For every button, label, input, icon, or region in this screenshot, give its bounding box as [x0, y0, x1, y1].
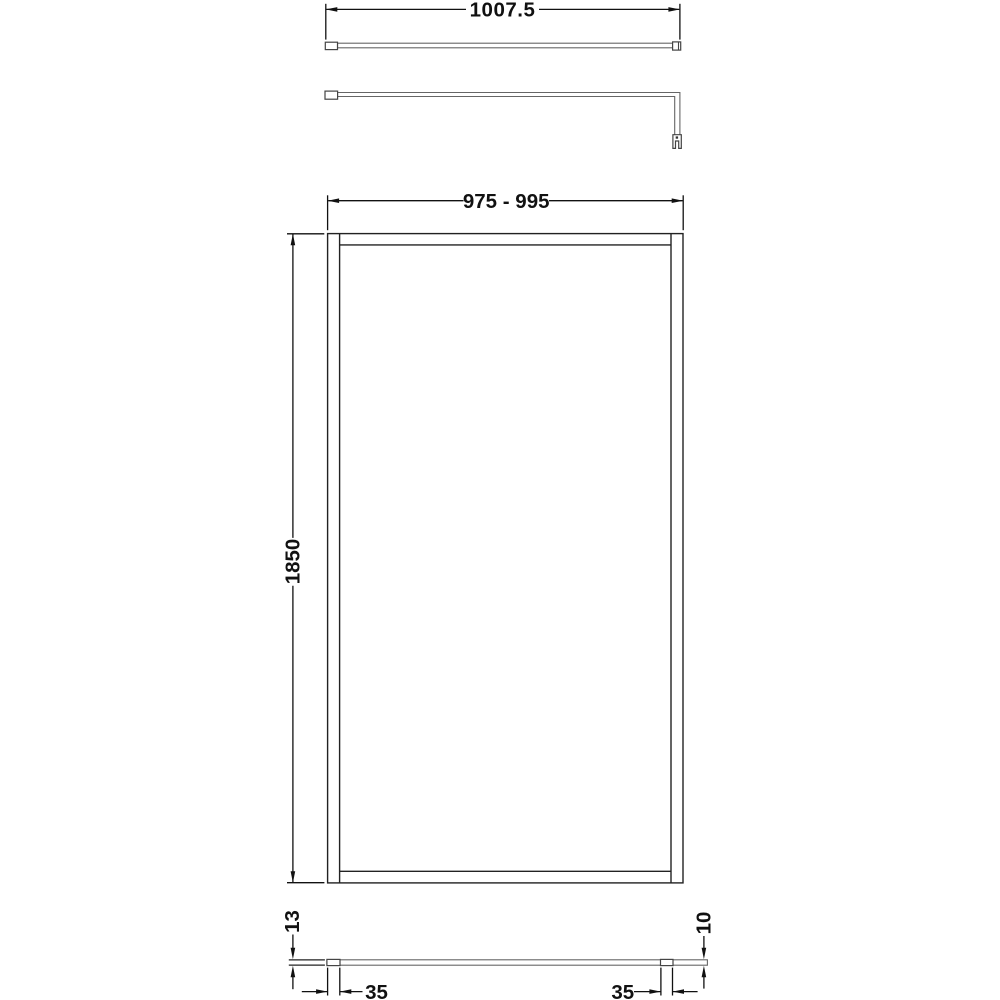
svg-text:975 - 995: 975 - 995: [463, 190, 550, 213]
svg-text:1007.5: 1007.5: [470, 0, 536, 22]
svg-text:10: 10: [692, 912, 715, 935]
svg-text:1850: 1850: [282, 539, 305, 585]
svg-text:13: 13: [281, 910, 304, 933]
svg-text:35: 35: [611, 981, 634, 1000]
svg-text:35: 35: [365, 981, 388, 1000]
